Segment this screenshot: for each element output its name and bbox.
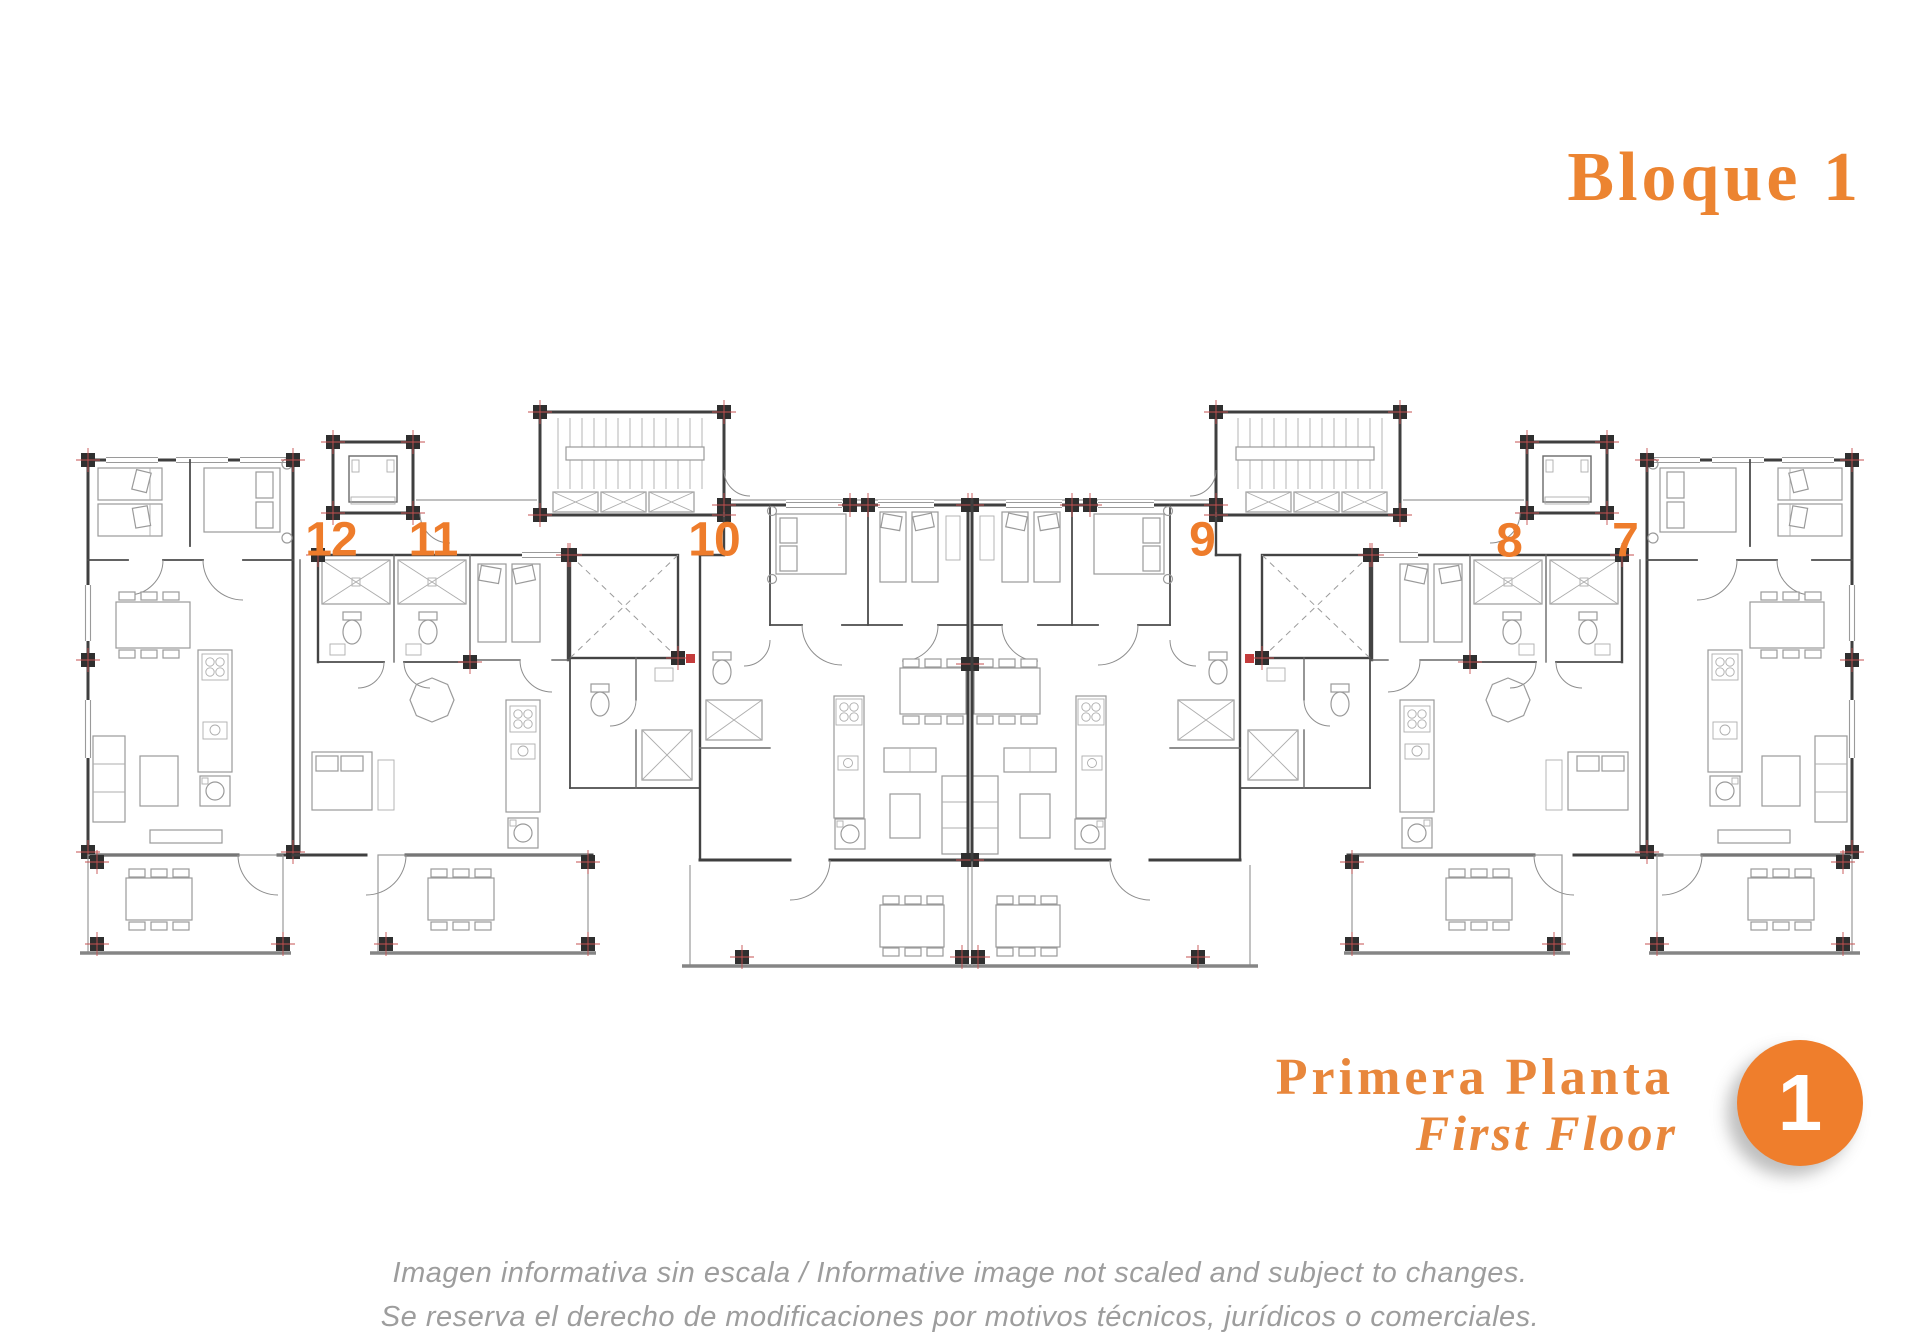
- page: { "header": { "block_title": "Bloque 1" …: [0, 0, 1920, 1329]
- floor-number-badge: 1: [1737, 1040, 1863, 1166]
- unit-number-11: 11: [409, 513, 458, 568]
- disclaimer-line-2: Se reserva el derecho de modificaciones …: [0, 1296, 1920, 1339]
- unit-number-10: 10: [688, 513, 739, 568]
- floor-label-en: First Floor: [1416, 1104, 1678, 1162]
- block-title: Bloque 1: [1567, 138, 1862, 218]
- disclaimer-line-1: Imagen informativa sin escala / Informat…: [0, 1252, 1920, 1296]
- floor-badge-number: 1: [1778, 1057, 1823, 1149]
- unit-number-8: 8: [1496, 514, 1522, 569]
- floor-label-es: Primera Planta: [1276, 1048, 1674, 1107]
- unit-number-7: 7: [1612, 514, 1638, 569]
- unit-number-9: 9: [1189, 513, 1215, 568]
- unit-number-12: 12: [305, 513, 356, 568]
- disclaimer: Imagen informativa sin escala / Informat…: [0, 1252, 1920, 1339]
